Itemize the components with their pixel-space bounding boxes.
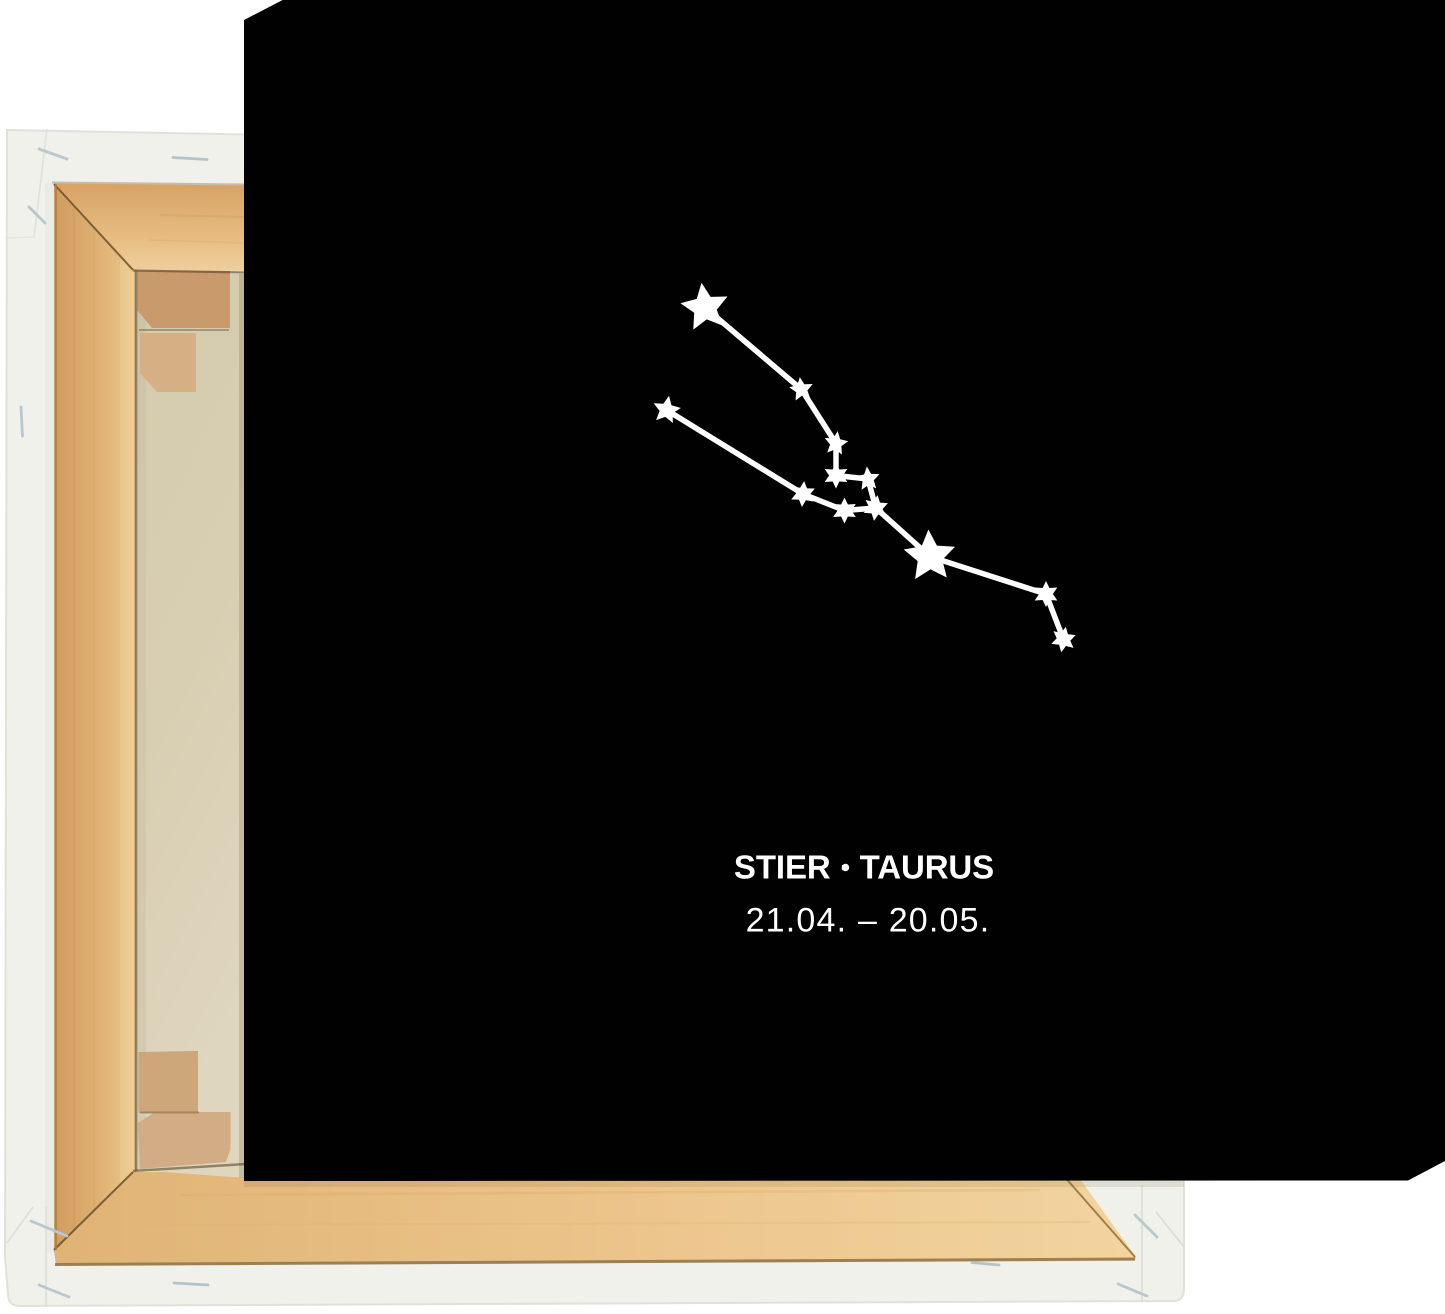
svg-text:21.04. – 20.05.: 21.04. – 20.05. — [746, 902, 991, 940]
svg-text:STIER · TAURUS: STIER · TAURUS — [734, 849, 994, 886]
